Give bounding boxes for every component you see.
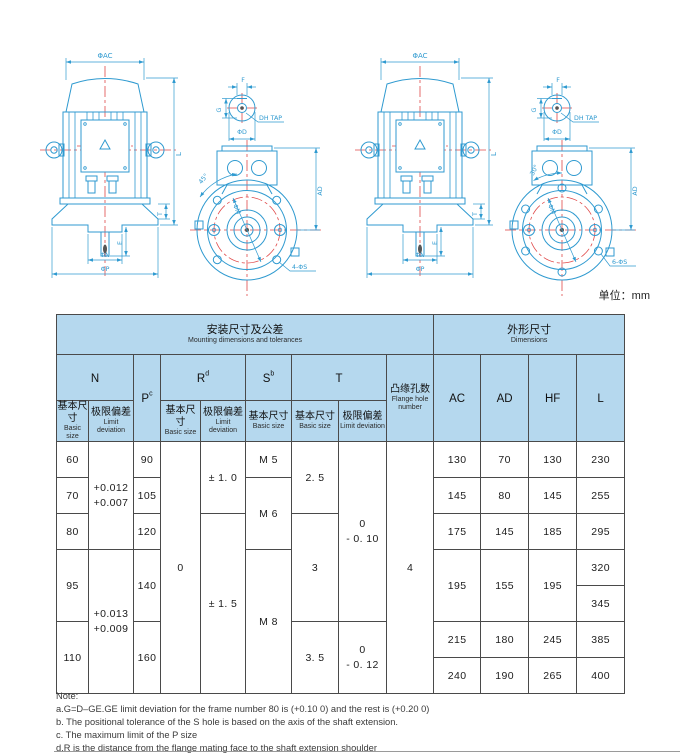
note-line-b: b. The positional tolerance of the S hol… bbox=[56, 716, 631, 729]
cell-r-basic: 0 bbox=[161, 442, 201, 694]
cell-p: 140 bbox=[134, 550, 161, 622]
dimensions-table: 安装尺寸及公差 Mounting dimensions and toleranc… bbox=[56, 314, 625, 694]
dim-label-ac: ΦAC bbox=[412, 52, 427, 60]
dim-label-p: ΦP bbox=[101, 266, 110, 273]
subheader-r-dev: 极限偏差Limit deviation bbox=[201, 401, 246, 442]
cell-l: 400 bbox=[577, 658, 625, 694]
cell-t-dev: 0 - 0. 10 bbox=[339, 442, 387, 622]
table-row: 60 +0.012 +0.007 90 0 ± 1. 0 M 5 2. 5 0 … bbox=[57, 442, 625, 478]
basic-en: Basic size bbox=[246, 423, 291, 431]
datasheet-page: ΦAC L T E ΦN ΦP F G DH TAP ΦD 45° ΦM AD … bbox=[0, 0, 680, 756]
col-header-t: T bbox=[292, 355, 387, 401]
dev-en: Limit deviation bbox=[89, 419, 133, 435]
cell-ac: 240 bbox=[434, 658, 481, 694]
dev-zh: 极限偏差 bbox=[339, 411, 386, 423]
cell-ac: 145 bbox=[434, 478, 481, 514]
cell-l: 230 bbox=[577, 442, 625, 478]
dev-zh: 极限偏差 bbox=[201, 407, 245, 419]
col-r-letter: R bbox=[197, 373, 205, 385]
dim-label-angle: 45° bbox=[197, 172, 210, 186]
cell-t-basic: 3. 5 bbox=[292, 622, 339, 694]
col-hf-letter: HF bbox=[545, 393, 560, 405]
col-header-ad: AD bbox=[481, 355, 529, 442]
cell-ad: 155 bbox=[481, 550, 529, 622]
unit-label: 单位：mm bbox=[599, 287, 650, 303]
dim-label-n: ΦN bbox=[100, 252, 110, 259]
cell-l: 255 bbox=[577, 478, 625, 514]
col-t-letter: T bbox=[335, 373, 342, 385]
dim-label-holes: 4-ΦS bbox=[292, 264, 307, 271]
col-header-flange-holes: 凸缘孔数 Flange hole number bbox=[387, 355, 434, 442]
table-row: 110 160 3. 5 0 - 0. 12 215 180 245 385 bbox=[57, 622, 625, 658]
cell-r-dev: ± 1. 5 bbox=[201, 514, 246, 694]
cell-ad: 80 bbox=[481, 478, 529, 514]
dim-label-n: ΦN bbox=[415, 252, 425, 259]
col-p-sup: c bbox=[149, 391, 153, 398]
dim-label-ad: AD bbox=[317, 186, 324, 195]
cell-flange-holes: 4 bbox=[387, 442, 434, 694]
col-ad-letter: AD bbox=[497, 393, 513, 405]
cell-p: 105 bbox=[134, 478, 161, 514]
header-mounting-en: Mounting dimensions and tolerances bbox=[57, 337, 433, 345]
cell-s: M 5 bbox=[246, 442, 292, 478]
cell-ac: 175 bbox=[434, 514, 481, 550]
dim-label-p: ΦP bbox=[416, 266, 425, 273]
dim-label-e: E bbox=[432, 241, 439, 245]
centerlines bbox=[40, 66, 322, 296]
cell-n-basic: 70 bbox=[57, 478, 89, 514]
cell-l: 320 bbox=[577, 550, 625, 586]
col-s-sup: b bbox=[270, 370, 274, 377]
dim-label-l: L bbox=[175, 152, 183, 156]
cell-hf: 195 bbox=[529, 550, 577, 622]
cell-n-dev: +0.012 +0.007 bbox=[89, 442, 134, 550]
subheader-n-basic: 基本尺寸Basic size bbox=[57, 401, 89, 442]
basic-en: Basic size bbox=[161, 429, 200, 437]
cell-t-dev: 0 - 0. 12 bbox=[339, 622, 387, 694]
basic-zh: 基本尺寸 bbox=[57, 401, 88, 425]
subheader-r-basic: 基本尺寸Basic size bbox=[161, 401, 201, 442]
dim-label-holes: 6-ΦS bbox=[612, 259, 627, 266]
basic-en: Basic size bbox=[292, 423, 338, 431]
dim-label-dh-tap: DH TAP bbox=[574, 115, 597, 122]
cell-t-basic: 3 bbox=[292, 514, 339, 622]
cell-l: 385 bbox=[577, 622, 625, 658]
dim-label-ac: ΦAC bbox=[97, 52, 112, 60]
dim-label-d: ΦD bbox=[552, 129, 562, 136]
cell-s: M 8 bbox=[246, 550, 292, 694]
cell-hf: 130 bbox=[529, 442, 577, 478]
col-header-p: Pc bbox=[134, 355, 161, 442]
col-header-r: Rd bbox=[161, 355, 246, 401]
cell-ad: 190 bbox=[481, 658, 529, 694]
note-title: Note: bbox=[56, 690, 631, 703]
cell-ad: 180 bbox=[481, 622, 529, 658]
cell-n-basic: 110 bbox=[57, 622, 89, 694]
header-mounting-zh: 安装尺寸及公差 bbox=[57, 324, 433, 337]
dev-zh: 极限偏差 bbox=[89, 407, 133, 419]
dev-en: Limit deviation bbox=[339, 423, 386, 431]
col-n-letter: N bbox=[91, 373, 99, 385]
cell-l: 295 bbox=[577, 514, 625, 550]
cell-ac: 130 bbox=[434, 442, 481, 478]
cell-hf: 145 bbox=[529, 478, 577, 514]
dim-label-angle: 30° bbox=[528, 163, 540, 177]
subheader-t-basic: 基本尺寸Basic size bbox=[292, 401, 339, 442]
flange-holes-en: Flange hole number bbox=[387, 396, 433, 412]
subheader-t-dev: 极限偏差Limit deviation bbox=[339, 401, 387, 442]
cell-hf: 245 bbox=[529, 622, 577, 658]
subheader-n-dev: 极限偏差Limit deviation bbox=[89, 401, 134, 442]
dim-label-g: G bbox=[216, 107, 223, 112]
col-l-letter: L bbox=[597, 393, 603, 405]
col-r-sup: d bbox=[205, 370, 209, 377]
cell-s: M 6 bbox=[246, 478, 292, 550]
header-overall-en: Dimensions bbox=[434, 337, 624, 345]
cell-ac: 195 bbox=[434, 550, 481, 622]
cell-l: 345 bbox=[577, 586, 625, 622]
dim-label-g: G bbox=[531, 107, 538, 112]
col-header-l: L bbox=[577, 355, 625, 442]
note-line-d: d.R is the distance from the flange mati… bbox=[56, 742, 631, 755]
header-mounting-group: 安装尺寸及公差 Mounting dimensions and toleranc… bbox=[57, 315, 434, 355]
cell-n-basic: 60 bbox=[57, 442, 89, 478]
basic-zh: 基本尺寸 bbox=[161, 405, 200, 429]
col-header-s: Sb bbox=[246, 355, 292, 401]
cell-hf: 265 bbox=[529, 658, 577, 694]
basic-zh: 基本尺寸 bbox=[246, 411, 291, 423]
dim-label-f: F bbox=[556, 77, 560, 84]
motor-drawing-right: ΦAC L T E ΦN ΦP F G DH TAP ΦD 30° ΦM AD … bbox=[355, 52, 639, 296]
dim-label-e: E bbox=[117, 241, 124, 245]
cell-p: 120 bbox=[134, 514, 161, 550]
dim-label-t: T bbox=[157, 212, 164, 217]
col-p-letter: P bbox=[141, 393, 149, 405]
cell-hf: 185 bbox=[529, 514, 577, 550]
cell-r-dev: ± 1. 0 bbox=[201, 442, 246, 514]
header-overall-group: 外形尺寸 Dimensions bbox=[434, 315, 625, 355]
dim-label-d: ΦD bbox=[237, 129, 247, 136]
subheader-s-basic: 基本尺寸Basic size bbox=[246, 401, 292, 442]
cell-n-dev: +0.013 +0.009 bbox=[89, 550, 134, 694]
col-header-n: N bbox=[57, 355, 134, 401]
cell-n-basic: 80 bbox=[57, 514, 89, 550]
centerlines bbox=[355, 66, 637, 296]
dim-label-dh-tap: DH TAP bbox=[259, 115, 282, 122]
dim-label-f: F bbox=[241, 77, 245, 84]
cell-t-basic: 2. 5 bbox=[292, 442, 339, 514]
dim-label-l: L bbox=[490, 152, 498, 156]
col-header-ac: AC bbox=[434, 355, 481, 442]
basic-zh: 基本尺寸 bbox=[292, 411, 338, 423]
dim-label-ad: AD bbox=[632, 186, 639, 195]
note-line-a: a.G=D–GE.GE limit deviation for the fram… bbox=[56, 703, 631, 716]
cell-ad: 145 bbox=[481, 514, 529, 550]
cell-ac: 215 bbox=[434, 622, 481, 658]
note-block: Note: a.G=D–GE.GE limit deviation for th… bbox=[56, 690, 631, 755]
cell-n-basic: 95 bbox=[57, 550, 89, 622]
motor-outline-drawings: ΦAC L T E ΦN ΦP F G DH TAP ΦD 45° ΦM AD … bbox=[0, 8, 680, 308]
dim-label-t: T bbox=[472, 212, 479, 217]
bottom-rule bbox=[54, 751, 680, 752]
cell-ad: 70 bbox=[481, 442, 529, 478]
dev-en: Limit deviation bbox=[201, 419, 245, 435]
basic-en: Basic size bbox=[57, 425, 88, 441]
col-header-hf: HF bbox=[529, 355, 577, 442]
cell-p: 160 bbox=[134, 622, 161, 694]
header-overall-zh: 外形尺寸 bbox=[434, 324, 624, 337]
note-line-c: c. The maximum limit of the P size bbox=[56, 729, 631, 742]
motor-drawing-left: ΦAC L T E ΦN ΦP F G DH TAP ΦD 45° ΦM AD … bbox=[40, 52, 324, 296]
col-ac-letter: AC bbox=[449, 393, 465, 405]
cell-p: 90 bbox=[134, 442, 161, 478]
flange-holes-zh: 凸缘孔数 bbox=[387, 384, 433, 396]
